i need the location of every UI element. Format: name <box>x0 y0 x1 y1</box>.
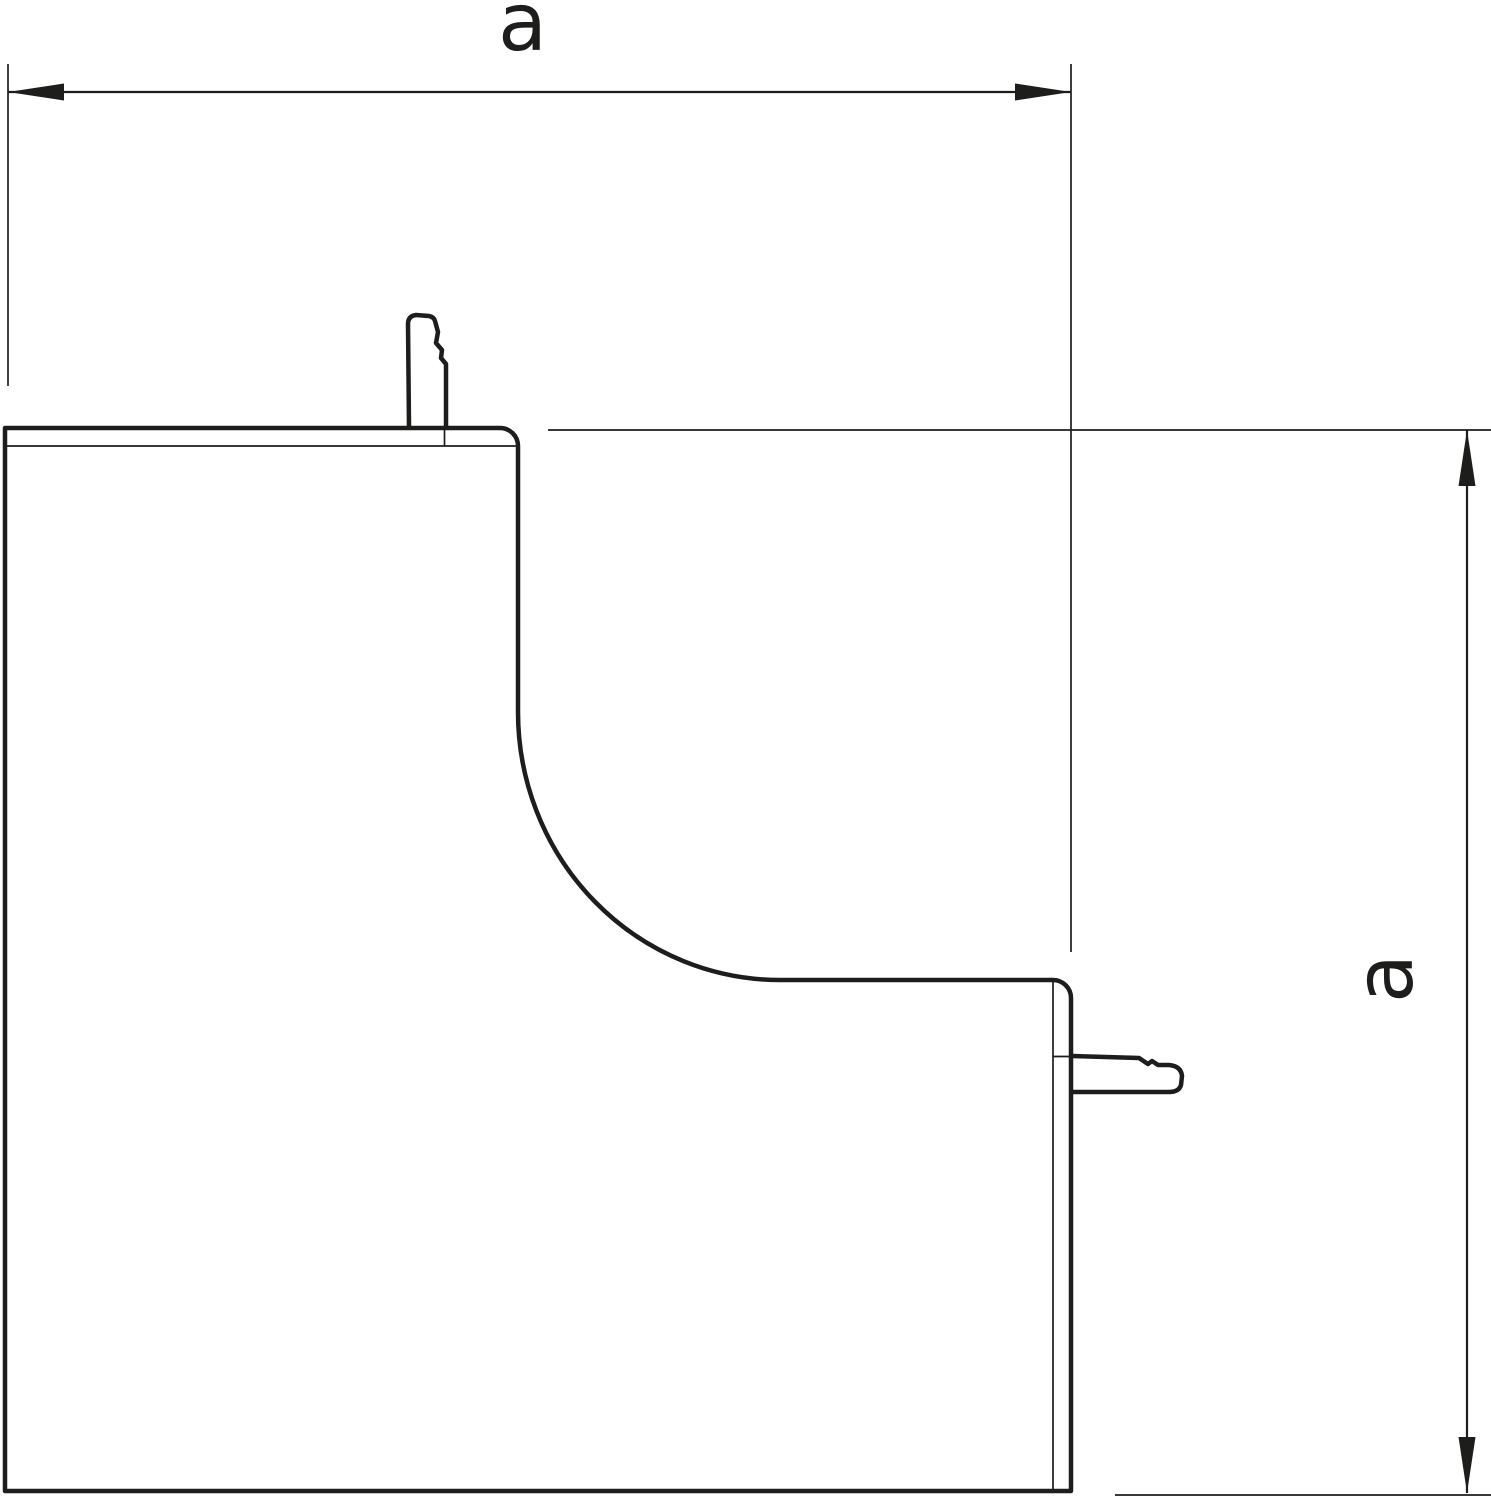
clip-tab-top <box>408 315 446 427</box>
horizontal-dimension: a <box>8 0 1071 952</box>
part-outline <box>5 428 1071 1491</box>
arrowhead-left-icon <box>8 84 64 101</box>
clip-tab-right <box>1072 1056 1182 1092</box>
arrowhead-down-icon <box>1459 1437 1476 1493</box>
arrowhead-up-icon <box>1459 430 1476 486</box>
technical-drawing: a a <box>0 0 1491 1500</box>
dimension-label-height: a <box>1338 954 1431 1003</box>
corner-piece <box>5 315 1182 1491</box>
drawing-canvas: a a <box>0 0 1491 1500</box>
dimension-label-width: a <box>498 0 547 69</box>
arrowhead-right-icon <box>1015 84 1071 101</box>
